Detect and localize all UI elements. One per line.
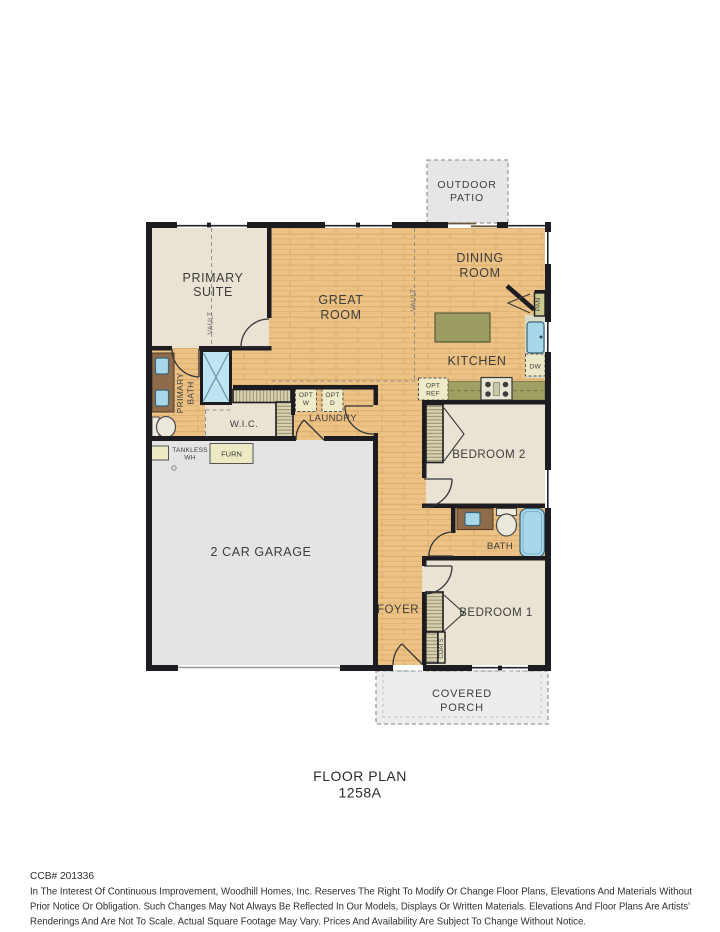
label-outdoor-patio: OUTDOOR xyxy=(437,179,496,191)
label-primary-bath: PRIMARY xyxy=(175,373,185,414)
label-garage: 2 CAR GARAGE xyxy=(211,545,312,559)
primary-toilet-icon xyxy=(157,417,176,438)
bath-toilet-icon xyxy=(497,514,517,536)
plan-title: FLOOR PLAN xyxy=(313,768,407,784)
label-vault-suite: VAULT xyxy=(208,311,215,334)
label-dining-room: DINING xyxy=(456,251,503,265)
floor-plan-canvas: OUTDOOR PATIO PRIMARY SUITE GREAT ROOM D… xyxy=(0,0,720,932)
label-kitchen: KITCHEN xyxy=(447,354,506,368)
label-opt-ref: OPT xyxy=(426,383,440,390)
label-dw: DW xyxy=(530,364,542,371)
label-furn: FURN xyxy=(221,450,242,459)
plan-number: 1258A xyxy=(339,785,382,801)
label-bath: BATH xyxy=(487,541,513,552)
label-laundry: LAUNDRY xyxy=(309,413,357,424)
wic-shelf-right xyxy=(276,402,293,440)
wic-shelf-top xyxy=(233,390,291,403)
label-pan: PAN xyxy=(535,298,542,312)
bath-sink-icon xyxy=(465,513,480,526)
label-coats: COATS xyxy=(439,638,445,658)
label-great-room: GREAT xyxy=(318,293,363,307)
svg-text:SUITE: SUITE xyxy=(193,285,233,299)
svg-text:WH: WH xyxy=(184,455,195,462)
ccb-number: CCB# 201336 xyxy=(30,871,94,882)
label-covered-porch: COVERED xyxy=(432,688,492,700)
bedroom1-closet xyxy=(426,592,443,632)
label-foyer: FOYER xyxy=(377,604,419,616)
tankless-wh-box xyxy=(152,446,169,460)
disclaimer-line3: Renderings And Are Not To Scale. Actual … xyxy=(30,917,586,928)
label-opt-w: OPT xyxy=(299,392,313,399)
disclaimer-line2: Prior Notice Or Obligation. Such Changes… xyxy=(30,902,690,913)
label-wic: W.I.C. xyxy=(230,419,258,430)
svg-text:PORCH: PORCH xyxy=(440,702,484,714)
disclaimer-line1: In The Interest Of Continuous Improvemen… xyxy=(30,887,692,898)
svg-text:ROOM: ROOM xyxy=(320,308,361,322)
svg-text:BATH: BATH xyxy=(186,381,196,404)
label-opt-d: OPT xyxy=(325,392,339,399)
svg-text:W: W xyxy=(303,400,310,407)
bedroom2-closet xyxy=(426,405,443,463)
label-bedroom1: BEDROOM 1 xyxy=(459,607,533,619)
svg-text:REF: REF xyxy=(426,391,440,398)
footer: FLOOR PLAN 1258A CCB# 201336 In The Inte… xyxy=(30,768,692,928)
primary-sink2-icon xyxy=(156,390,169,406)
label-bedroom2: BEDROOM 2 xyxy=(452,449,526,461)
bathtub-icon xyxy=(520,509,545,558)
svg-text:D: D xyxy=(330,400,335,407)
label-tankless-wh: TANKLESS xyxy=(172,447,208,454)
kitchen-island xyxy=(435,313,490,342)
svg-text:ROOM: ROOM xyxy=(459,266,500,280)
svg-text:PATIO: PATIO xyxy=(450,192,484,204)
primary-sink1-icon xyxy=(156,358,169,374)
label-primary-suite: PRIMARY xyxy=(183,271,244,285)
label-vault-great: VAULT xyxy=(411,288,418,311)
